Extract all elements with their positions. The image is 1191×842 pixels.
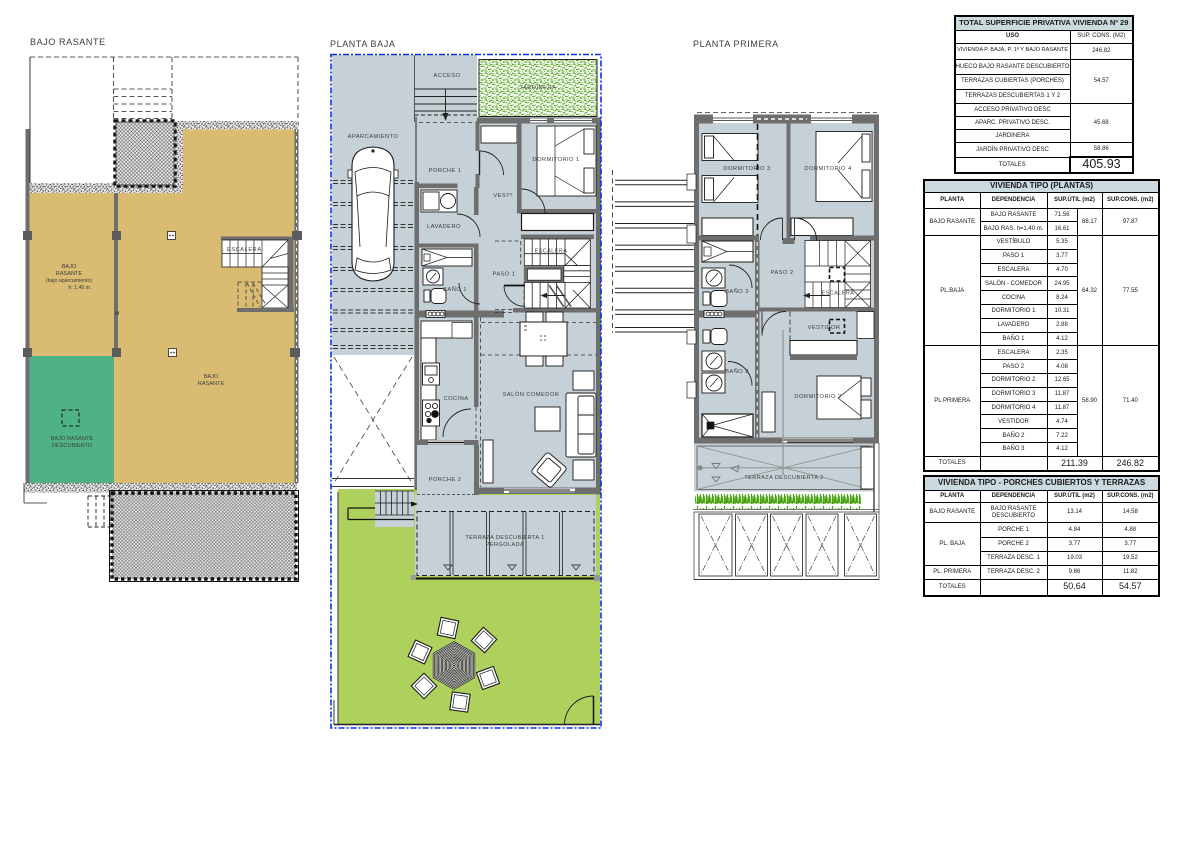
svg-text:BAJO RASANTE: BAJO RASANTE bbox=[30, 37, 106, 47]
svg-text:PORCHE 2: PORCHE 2 bbox=[429, 477, 462, 483]
svg-text:DORMITORIO 3: DORMITORIO 3 bbox=[723, 166, 770, 172]
svg-text:ESCALERA: ESCALERA bbox=[535, 249, 568, 255]
svg-text:SALÓN COMEDOR: SALÓN COMEDOR bbox=[503, 391, 560, 398]
svg-text:DORMITORIO 1: DORMITORIO 1 bbox=[532, 157, 579, 163]
svg-text:h: 1,40 m.: h: 1,40 m. bbox=[68, 285, 91, 291]
svg-text:APARCAMIENTO: APARCAMIENTO bbox=[348, 134, 399, 140]
svg-text:PORCHE 1: PORCHE 1 bbox=[429, 168, 462, 174]
svg-text:PLANTA BAJA: PLANTA BAJA bbox=[330, 39, 395, 49]
svg-text:LAVADERO: LAVADERO bbox=[427, 224, 461, 230]
svg-text:RASANTE: RASANTE bbox=[56, 271, 83, 277]
svg-text:PASO 1: PASO 1 bbox=[493, 272, 516, 278]
svg-text:PASO 2: PASO 2 bbox=[771, 270, 794, 276]
svg-text:BAJO: BAJO bbox=[62, 264, 77, 270]
svg-text:DORMITORIO 2: DORMITORIO 2 bbox=[794, 394, 841, 400]
svg-text:(bajo aparcamiento): (bajo aparcamiento) bbox=[46, 278, 92, 284]
svg-text:DESCUBIERTO: DESCUBIERTO bbox=[52, 443, 93, 449]
svg-text:PERGOLADA: PERGOLADA bbox=[486, 542, 524, 548]
svg-text:VESTIDOR: VESTIDOR bbox=[808, 325, 841, 331]
svg-text:BAJO RASANTE: BAJO RASANTE bbox=[51, 436, 94, 442]
svg-text:BAÑO 3: BAÑO 3 bbox=[725, 288, 749, 295]
svg-text:TERRAZA DESCUBIERTA 1: TERRAZA DESCUBIERTA 1 bbox=[465, 535, 544, 541]
svg-text:DORMITORIO 4: DORMITORIO 4 bbox=[804, 166, 852, 172]
svg-text:JARDINERA: JARDINERA bbox=[520, 85, 556, 91]
svg-text:BAJO: BAJO bbox=[204, 374, 219, 380]
svg-text:PLANTA PRIMERA: PLANTA PRIMERA bbox=[693, 39, 779, 49]
svg-text:VESTº: VESTº bbox=[493, 192, 513, 199]
svg-text:RASANTE: RASANTE bbox=[198, 381, 225, 387]
svg-text:TERRAZA DESCUBIERTA 2: TERRAZA DESCUBIERTA 2 bbox=[744, 475, 823, 481]
svg-text:BAÑO 1: BAÑO 1 bbox=[443, 286, 467, 293]
svg-text:ACCESO: ACCESO bbox=[434, 73, 461, 79]
svg-text:ESCALERA: ESCALERA bbox=[227, 247, 262, 253]
svg-text:ESCALERA: ESCALERA bbox=[822, 291, 855, 297]
svg-text:COCINA: COCINA bbox=[444, 396, 469, 402]
